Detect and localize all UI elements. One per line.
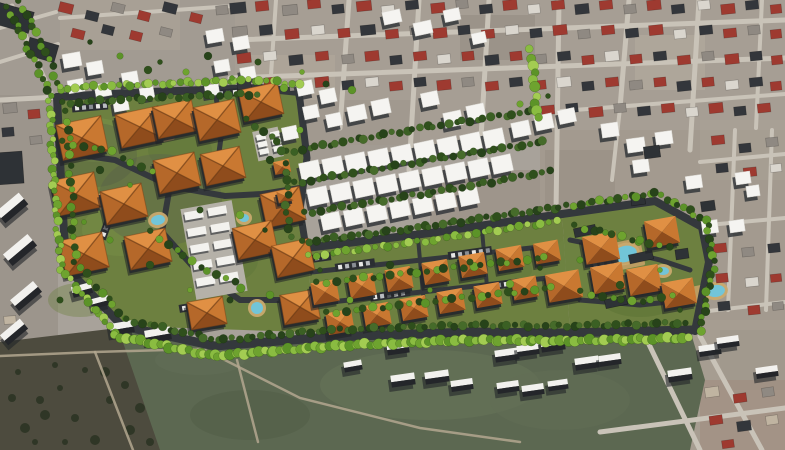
tree [414,223,421,230]
tree [359,135,368,144]
tree [368,199,374,205]
tree [313,253,320,260]
house-roof [716,163,729,173]
tree [321,250,330,259]
tree [137,163,146,172]
tree [612,320,621,329]
tree [632,193,641,202]
tree [70,193,77,200]
house-roof [356,0,372,12]
tree [510,208,519,217]
tree [540,253,547,260]
house-roof [709,102,724,113]
tree [158,92,167,101]
house-roof [661,103,675,113]
satellite-house [661,103,675,113]
tree [508,173,517,182]
tree [273,138,280,145]
tree [243,116,249,122]
tree [492,212,501,221]
tree [178,328,187,337]
tree [507,110,516,119]
tree [171,328,178,335]
tree [137,95,146,104]
tree [424,269,430,275]
tree [67,225,76,234]
satellite-house [3,102,18,113]
house-roof [389,81,403,91]
tree [577,288,583,294]
parked-car [352,263,357,268]
satellite-house [716,273,729,283]
tree [537,206,543,212]
tree [68,275,74,281]
bush [15,369,21,375]
tree [92,145,98,151]
house-roof [332,4,345,14]
house-roof [605,77,619,87]
tree [188,256,197,265]
house-roof [771,55,783,65]
house-roof [582,55,595,65]
house-roof [770,29,782,39]
satellite-house [770,4,782,14]
tree [409,126,415,132]
tree [150,168,156,174]
satellite-house [761,387,774,398]
satellite-house [637,106,651,116]
tree [368,134,374,140]
house-roof [750,51,763,61]
tree [607,196,614,203]
house-roof [770,273,782,282]
satellite-house [530,28,543,38]
satellite-house [625,28,639,38]
tree [652,319,661,328]
tree [156,236,163,243]
tree [337,326,343,332]
bush [20,423,30,433]
tree [144,66,152,74]
house-roof [390,55,403,65]
house-roof [413,51,427,61]
satellite-house [630,54,643,64]
tree [108,301,115,308]
white-flat-building [682,174,703,193]
tree [333,310,340,317]
tree [409,191,415,197]
tree [517,110,523,116]
house-roof [722,439,735,449]
tree [123,316,129,322]
satellite-house [734,106,747,116]
satellite-house [649,24,664,35]
satellite-house [433,27,448,38]
house-roof [505,25,519,35]
tree [212,77,219,84]
tree [486,112,495,121]
tree [237,76,246,85]
house-roof [433,27,448,38]
satellite-house [413,51,427,61]
bush [71,414,79,422]
building-roof [319,87,338,104]
tree [286,217,293,224]
tree [306,329,315,338]
house-roof [630,54,643,64]
tree [309,209,316,216]
tree [127,182,132,187]
tree [317,267,322,272]
tree [416,124,423,131]
tree [546,219,552,225]
satellite-house [770,81,782,91]
satellite-house [589,106,604,117]
tree [266,291,274,299]
tree [177,79,184,86]
house-roof [649,24,664,35]
tree [334,248,341,255]
tree [32,28,41,37]
satellite-house [365,77,379,87]
satellite-house [28,109,41,119]
tree [650,188,659,197]
tree [330,204,337,211]
tree [188,93,194,99]
dark-roof [0,151,24,185]
satellite-house [768,243,781,253]
tree [408,161,415,168]
tree [526,208,533,215]
tree [697,327,706,336]
house-roof [437,54,451,64]
tree [59,99,65,105]
house-roof [733,393,747,404]
tree [229,335,235,341]
tree [457,218,466,227]
tree [158,322,167,331]
house-roof [255,0,269,11]
tree [32,56,38,62]
tree [556,322,562,328]
house-roof [485,81,499,91]
parked-car [486,248,491,253]
tree [636,236,644,244]
satellite-house [315,51,329,61]
tree [544,204,551,211]
tree [584,321,591,328]
pool-water [251,302,263,314]
tree [507,143,513,149]
white-flat-building [83,60,105,80]
tree [408,225,414,231]
tree [598,292,607,301]
satellite-house [671,4,685,14]
tree [445,119,454,128]
tree [674,202,680,208]
tree [349,275,356,282]
satellite-house [582,55,595,65]
tree [656,242,662,248]
satellite-house [629,80,643,90]
tree [400,192,409,201]
tree [629,237,635,243]
satellite-house [528,4,541,14]
tree [65,150,74,159]
dark-roof [700,200,715,212]
tree [417,192,424,199]
tree [389,197,395,203]
house-roof [599,0,613,10]
tree [451,187,457,193]
house-roof [4,315,17,324]
tree [249,334,255,340]
tree [70,212,76,218]
tree [131,319,138,326]
tree [144,79,153,88]
tree [386,261,394,269]
tree [323,280,330,287]
house-roof [765,415,778,426]
tree [658,192,664,198]
tree [376,273,383,280]
tree [647,296,654,303]
satellite-house [307,0,321,9]
house-roof [30,135,43,144]
satellite-house [360,24,376,36]
tree [490,323,496,329]
tree [487,260,494,267]
tree [219,334,228,343]
satellite-house [599,0,613,10]
building-roof [302,104,319,120]
tree [437,321,446,330]
tree [622,194,628,200]
tree [523,256,532,265]
tree [588,198,595,205]
parked-car [380,294,385,299]
tree [386,271,395,280]
tree [570,203,577,210]
satellite-house [739,143,752,153]
satellite-house [255,0,269,11]
tree [54,216,63,225]
tree [68,163,74,169]
dark-building [700,200,715,212]
tree [255,59,262,66]
tree [277,146,286,155]
house-roof [405,0,419,10]
tree [87,279,93,285]
tree [67,135,73,141]
house-roof [551,0,565,10]
tree [311,143,318,150]
tree [432,222,439,229]
tree [447,294,456,303]
tree [342,307,351,316]
tree [332,277,341,286]
tree [393,242,399,248]
house-roof [479,4,493,14]
house-roof [653,51,667,61]
house-roof [614,103,627,113]
tree [618,231,627,240]
house-roof [285,28,300,39]
house-roof [365,77,379,87]
tree [538,136,547,145]
satellite-house [716,163,729,173]
tree [323,309,329,315]
house-roof [553,24,568,35]
tree [563,202,569,208]
tree [40,76,46,82]
satellite-house [749,77,763,87]
house-roof [718,301,731,311]
house-roof [385,29,399,39]
house-roof [557,51,571,61]
house-roof [458,25,471,35]
house-roof [3,102,18,113]
satellite-house [624,4,637,14]
tree [577,200,586,209]
satellite-house [389,81,403,91]
house-roof [289,54,304,65]
tree [459,294,465,300]
tree [330,233,339,242]
tree [196,92,203,99]
tree [617,296,624,303]
tree [71,218,78,225]
house-roof [605,50,620,61]
tree [433,299,439,305]
tree [223,275,229,281]
tree [421,299,430,308]
tree [485,292,491,298]
tree [71,259,77,265]
tree [597,227,604,234]
satellite-house [698,0,711,10]
tree [283,176,292,185]
tree [66,178,75,187]
tree [98,289,107,298]
house-roof [229,2,246,15]
tree [571,222,577,228]
house-roof [748,305,761,315]
parked-car [366,261,371,266]
tree [515,222,524,231]
bush [52,362,58,368]
tree [96,166,104,174]
tree [347,297,354,304]
tree [254,92,260,98]
tree [712,258,718,264]
tree [285,184,291,190]
tree [183,69,190,76]
tree [117,53,124,60]
tree [64,126,73,135]
tree [425,224,431,230]
satellite-house [485,81,499,91]
tree [389,129,395,135]
tree [464,231,471,238]
house-roof [757,103,771,113]
tree [299,328,306,335]
tree [371,275,377,281]
tree [673,319,682,328]
dark-building [0,151,24,185]
satellite-house [259,24,273,35]
satellite-house [405,0,419,10]
house-roof [601,25,615,35]
satellite-house [289,54,304,65]
house-roof [462,77,475,87]
house-roof [770,163,782,172]
house-roof [510,51,523,61]
tree [116,95,125,104]
house-roof [725,53,740,64]
tree [116,82,122,88]
tree [459,184,466,191]
tree [227,297,234,304]
tree [479,178,486,185]
satellite-house [605,77,619,87]
tree [281,201,290,210]
tree [67,100,74,107]
tree [263,78,269,84]
tree [535,113,543,121]
parked-car [359,262,364,267]
tree [305,252,311,258]
tree [285,191,292,198]
dark-roof [643,145,661,159]
tree [159,81,166,88]
house-roof [770,4,782,14]
house-roof [311,25,325,35]
house-roof [742,247,755,257]
tree [270,333,276,339]
white-flat-building [59,52,83,73]
tree [685,333,693,341]
tree [475,214,484,223]
tree [517,101,524,108]
house-roof [772,301,784,310]
satellite-house [462,77,475,87]
tree [62,108,68,114]
tree [109,97,116,104]
satellite-house [216,5,229,15]
tree [611,295,617,301]
satellite-house [551,0,565,10]
satellite-house [332,4,345,14]
tree [524,322,533,331]
tree [208,336,214,342]
tree [507,224,514,231]
tree [283,160,289,166]
house-roof [711,135,725,145]
tree [199,334,208,343]
bush [32,439,38,445]
house-roof [2,127,15,137]
building-roof [735,171,752,185]
house-roof [749,77,763,87]
bush [90,435,100,445]
tree [3,4,9,10]
tree [495,290,502,297]
tree [164,240,173,249]
bush [8,394,16,402]
building-roof [86,60,104,76]
building-roof [685,174,703,189]
